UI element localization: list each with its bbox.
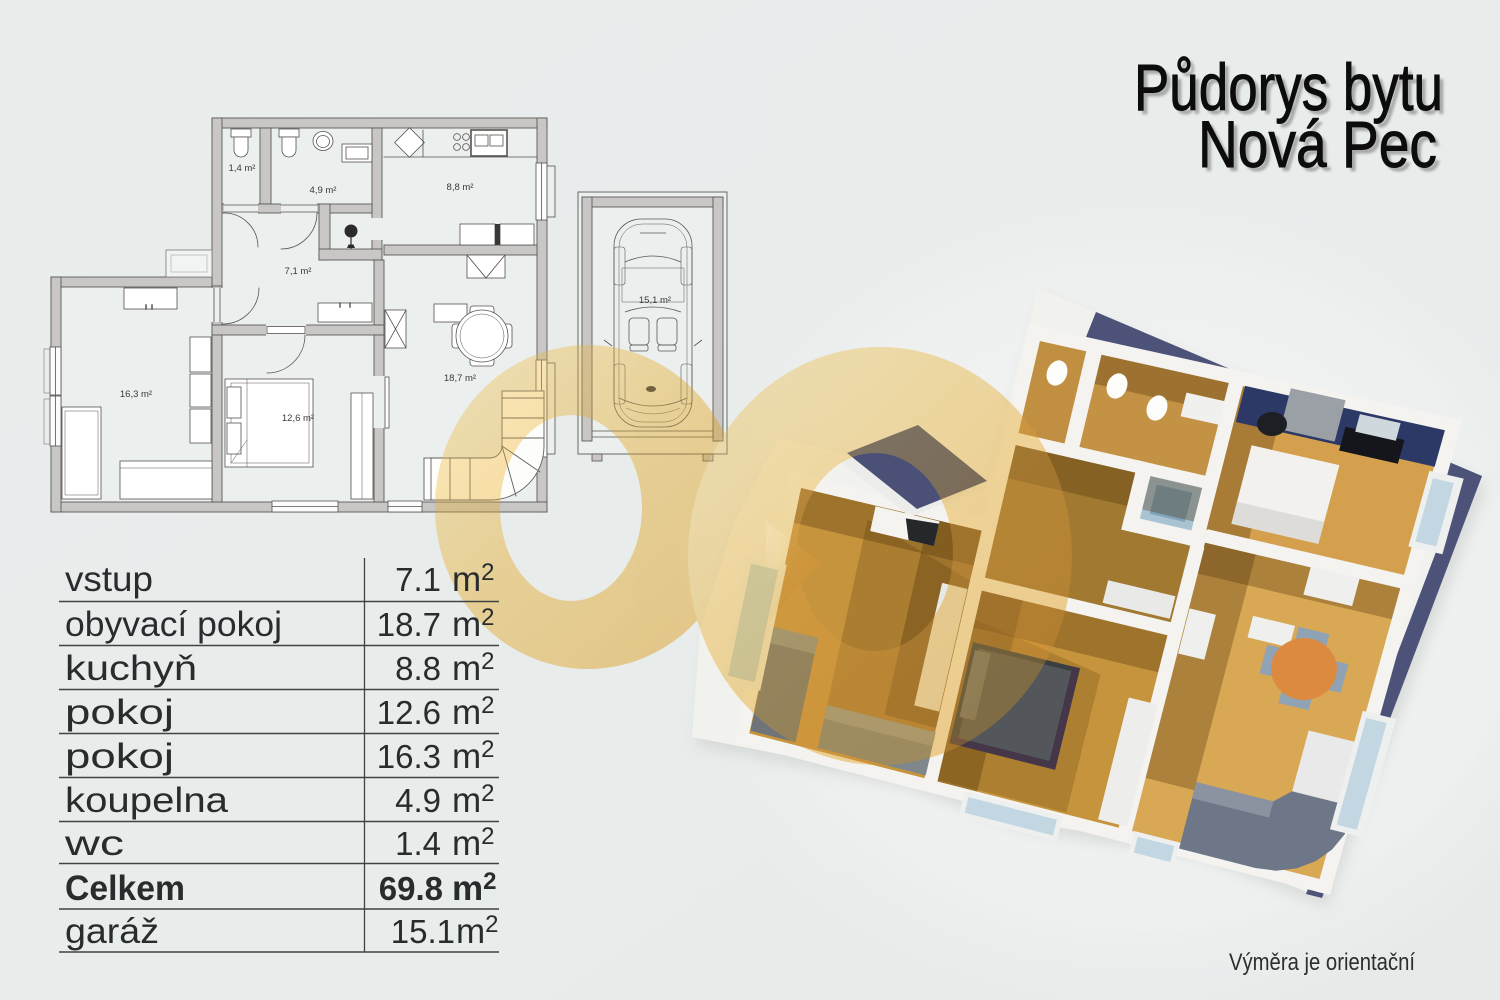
svg-text:wc: wc — [64, 824, 124, 863]
svg-text:7.1: 7.1 — [395, 561, 441, 598]
svg-text:69.8: 69.8 — [379, 870, 443, 907]
svg-text:Nová Pec: Nová Pec — [1198, 107, 1437, 181]
svg-text:Celkem: Celkem — [65, 869, 185, 908]
svg-text:12,6 m²: 12,6 m² — [282, 413, 314, 424]
svg-text:kuchyň: kuchyň — [65, 649, 197, 688]
svg-text:15.1: 15.1 — [391, 913, 455, 950]
svg-text:18.7: 18.7 — [377, 606, 441, 643]
svg-text:4.9: 4.9 — [395, 782, 441, 819]
svg-text:8.8: 8.8 — [395, 650, 441, 687]
svg-text:garáž: garáž — [65, 912, 159, 951]
svg-text:18,7 m²: 18,7 m² — [444, 373, 476, 384]
svg-text:8,8 m²: 8,8 m² — [447, 182, 474, 193]
svg-text:12.6: 12.6 — [377, 694, 441, 731]
svg-text:4,9 m²: 4,9 m² — [310, 185, 337, 196]
svg-text:1.4: 1.4 — [395, 825, 441, 862]
svg-text:Výměra je orientační: Výměra je orientační — [1229, 949, 1415, 976]
svg-text:16,3 m²: 16,3 m² — [120, 389, 152, 400]
svg-text:1,4 m²: 1,4 m² — [229, 163, 256, 174]
svg-text:pokoj: pokoj — [65, 737, 174, 776]
svg-text:7,1 m²: 7,1 m² — [285, 266, 312, 277]
svg-text:pokoj: pokoj — [65, 693, 174, 732]
svg-text:koupelna: koupelna — [65, 781, 229, 820]
svg-text:16.3: 16.3 — [377, 738, 441, 775]
svg-text:15,1 m²: 15,1 m² — [639, 295, 671, 306]
svg-text:obyvací pokoj: obyvací pokoj — [65, 605, 282, 644]
svg-text:vstup: vstup — [65, 560, 153, 599]
